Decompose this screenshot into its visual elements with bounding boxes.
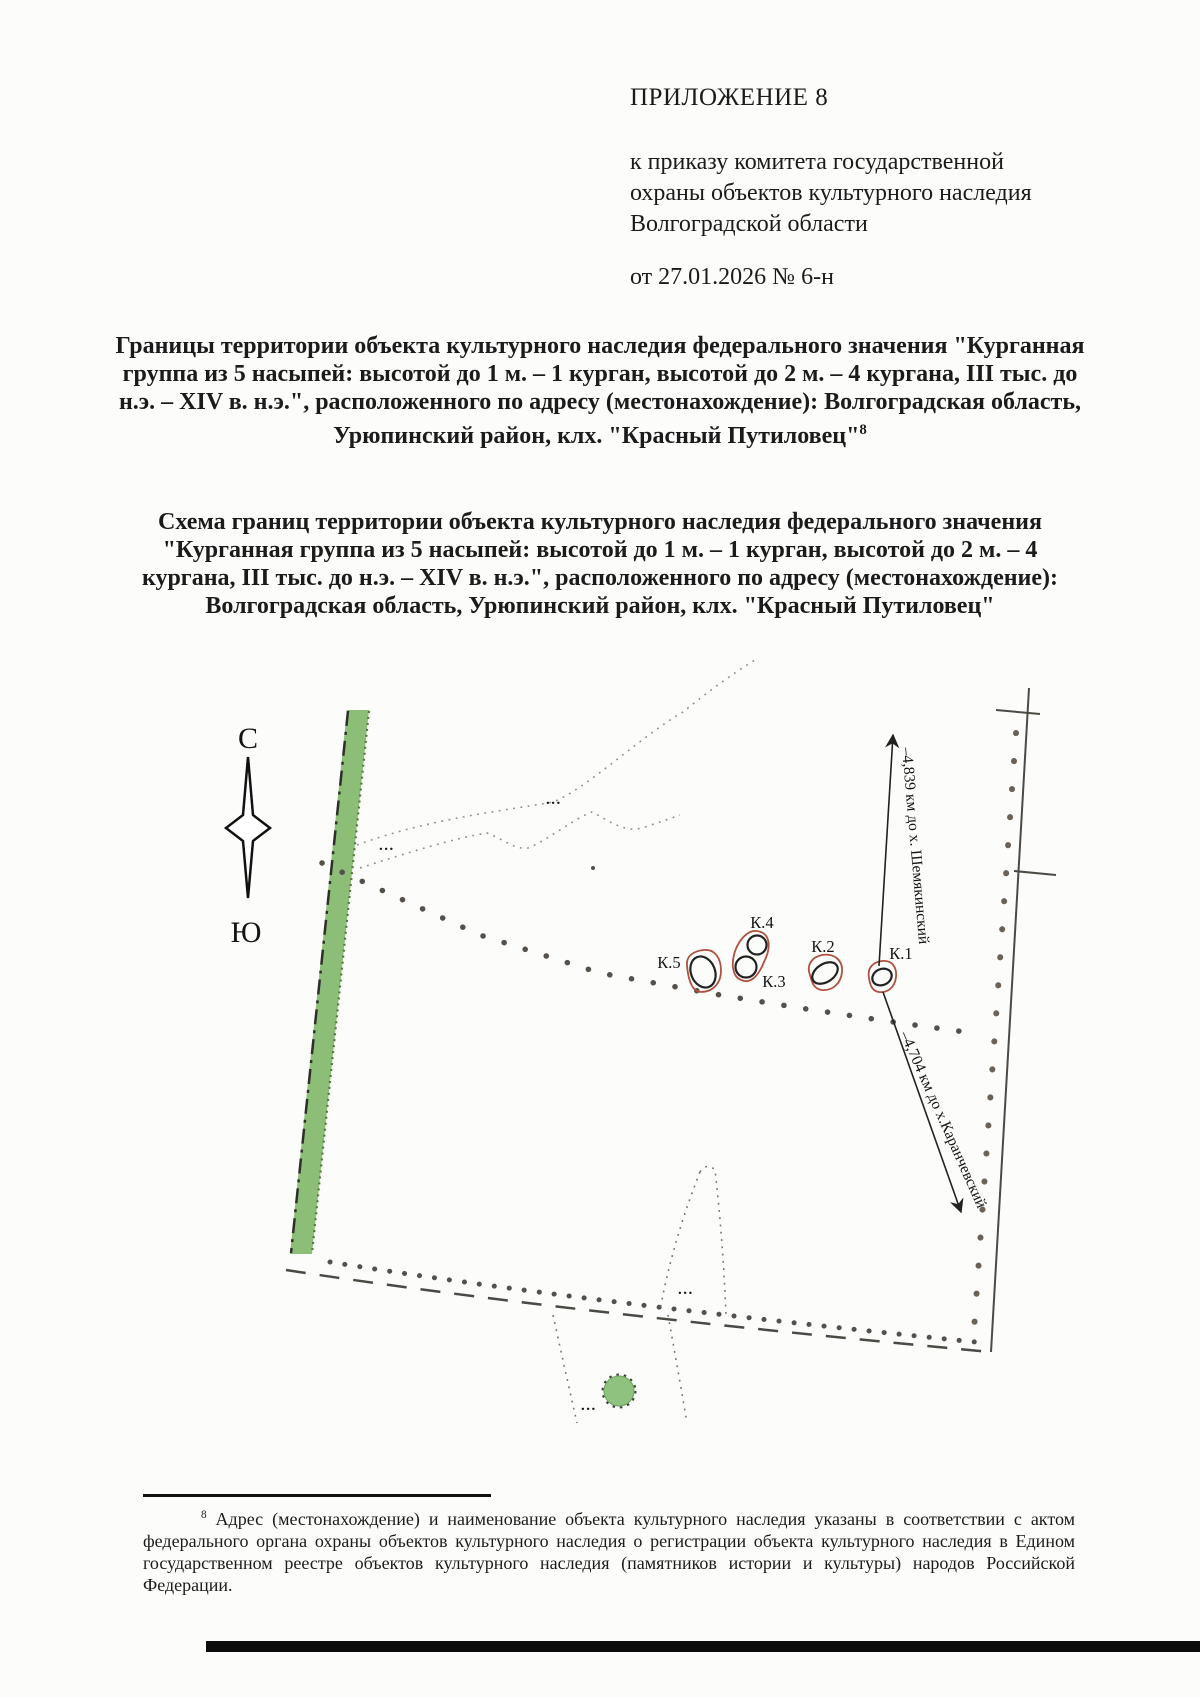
footnote: 8 Адрес (местонахождение) и наименование…: [143, 1504, 1075, 1596]
footnote-ref: 8: [201, 1509, 207, 1521]
distance-arrow-south: [883, 992, 961, 1212]
kurgan-k1: К.1: [869, 944, 913, 992]
road-tick-middle: [1014, 871, 1056, 875]
road: [974, 688, 1056, 1352]
appendix-label: ПРИЛОЖЕНИЕ 8: [630, 84, 828, 112]
kurgan-k2: К.2: [808, 937, 842, 990]
tree-grove-fill: [604, 1376, 634, 1406]
tree-grove: [603, 1375, 636, 1408]
footnote-text: Адрес (местонахождение) и наименование о…: [143, 1509, 1075, 1595]
compass-north-label: С: [238, 722, 258, 755]
schema-title: Схема границ территории объекта культурн…: [115, 508, 1085, 620]
kurgan-k1-label: К.1: [889, 944, 912, 963]
symbol-mark: ...: [379, 838, 395, 854]
gully-right-side: [700, 1166, 726, 1315]
symbol-mark: ...: [581, 1398, 597, 1414]
site-map: С Ю К.5: [150, 650, 1100, 1440]
territory-boundary-dots: [322, 863, 980, 1034]
kurgan-k3-mound: [736, 957, 757, 978]
kurgan-k4-mound: [748, 936, 767, 955]
symbol-marks: ... ... ... ...: [379, 792, 694, 1414]
boundaries-title-text: Границы территории объекта культурного н…: [116, 333, 1085, 449]
page-edge-bar: [206, 1641, 1200, 1652]
kurgan-k2-label: К.2: [811, 937, 834, 956]
kurgan-k3-label: К.3: [762, 972, 785, 991]
forest-belt: [290, 710, 369, 1254]
field-boundary-dashes: [286, 1270, 991, 1352]
kurgan-k1-mound: [870, 966, 895, 989]
kurgan-group: К.5 К.4 К.3 К.2 К.1: [657, 913, 912, 992]
kurgan-k4-label: К.4: [750, 913, 773, 932]
kurgan-k4-k3: К.4 К.3: [733, 913, 786, 991]
field-boundary-dots: [330, 1262, 985, 1343]
distance-label-south: –4,704 км до х.Каранчевский: [896, 1028, 990, 1211]
forest-belt-strip: [290, 710, 369, 1254]
distance-label-north: –4,839 км до х. Шемякинский: [898, 746, 932, 945]
footnote-separator: [143, 1494, 491, 1497]
gully-contour: [553, 1166, 726, 1423]
kurgan-k5: К.5: [657, 950, 721, 992]
ravine-contour-lower: [360, 812, 680, 868]
boundaries-title: Границы территории объекта культурного н…: [115, 332, 1085, 450]
symbol-mark: ...: [546, 792, 562, 808]
symbol-mark: ...: [678, 1282, 694, 1298]
footnote-ref-mark: 8: [859, 422, 866, 438]
compass-rose-icon: [226, 757, 270, 898]
order-date-line: от 27.01.2026 № 6-н: [630, 264, 834, 291]
ravine-contour-upper: [357, 660, 755, 845]
order-issuer-block: к приказу комитета государственной охран…: [630, 147, 1054, 240]
document-page: ПРИЛОЖЕНИЕ 8 к приказу комитета государс…: [0, 0, 1200, 1697]
road-tick-top: [996, 710, 1040, 714]
kurgan-k5-label: К.5: [657, 953, 680, 972]
distance-arrow-north: [879, 735, 893, 966]
compass-south-label: Ю: [231, 916, 262, 949]
ravine-contour: [357, 660, 755, 870]
gully-trail-left: [553, 1315, 577, 1423]
stray-dot: [591, 866, 595, 870]
gully-trail-right: [668, 1315, 687, 1423]
compass: С Ю: [226, 722, 270, 949]
field-boundary: [286, 1262, 991, 1352]
